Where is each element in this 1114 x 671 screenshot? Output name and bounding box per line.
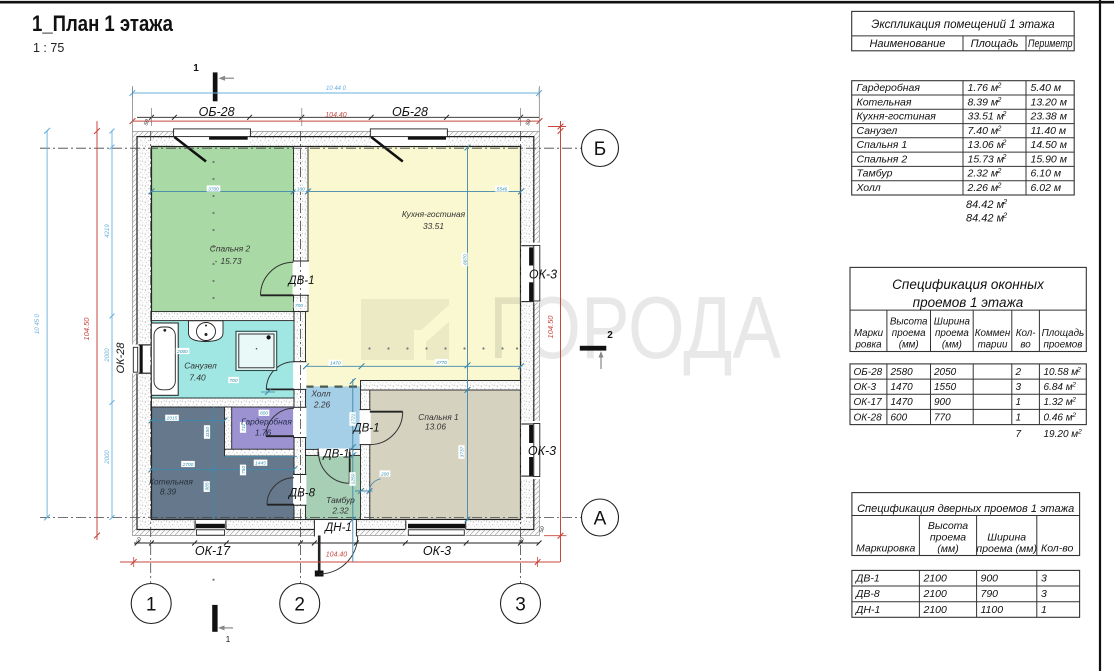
svg-text:900: 900 bbox=[981, 573, 999, 585]
svg-text:ОК-28: ОК-28 bbox=[854, 412, 883, 423]
svg-text:2: 2 bbox=[1002, 111, 1007, 118]
svg-text:Гардеробная: Гардеробная bbox=[241, 417, 292, 427]
svg-text:2: 2 bbox=[997, 183, 1002, 190]
svg-text:2: 2 bbox=[1071, 412, 1076, 419]
svg-text:Площадь: Площадь bbox=[971, 38, 1019, 50]
svg-text:600: 600 bbox=[891, 412, 908, 423]
svg-text:3: 3 bbox=[1041, 573, 1047, 585]
svg-text:13.06 м: 13.06 м bbox=[968, 139, 1004, 151]
svg-text:10 44 0: 10 44 0 bbox=[326, 86, 347, 92]
svg-text:проема (мм): проема (мм) bbox=[976, 543, 1037, 555]
svg-text:Высота: Высота bbox=[928, 520, 968, 532]
svg-text:104.40: 104.40 bbox=[326, 552, 348, 559]
svg-text:985: 985 bbox=[205, 482, 211, 490]
svg-text:Наименование: Наименование bbox=[869, 38, 945, 50]
svg-text:1470: 1470 bbox=[891, 397, 914, 408]
svg-text:проема: проема bbox=[892, 328, 926, 339]
svg-text:790: 790 bbox=[981, 588, 999, 600]
svg-text:1.32 м: 1.32 м bbox=[1044, 397, 1073, 408]
svg-text:Кухня-гостиная: Кухня-гостиная bbox=[402, 209, 466, 219]
svg-text:ДН-1: ДН-1 bbox=[855, 604, 880, 616]
svg-text:А: А bbox=[594, 508, 607, 529]
svg-text:1: 1 bbox=[1016, 412, 1022, 423]
svg-text:Кол-: Кол- bbox=[1016, 328, 1037, 339]
svg-text:13.06: 13.06 bbox=[425, 422, 446, 432]
svg-text:84.42 м: 84.42 м bbox=[966, 213, 1005, 225]
svg-text:ДВ-1: ДВ-1 bbox=[322, 449, 350, 461]
svg-text:Коммен: Коммен bbox=[975, 328, 1011, 339]
svg-text:2.26: 2.26 bbox=[313, 400, 331, 410]
svg-text:6.10 м: 6.10 м bbox=[1031, 168, 1062, 180]
svg-text:ДН-1: ДН-1 bbox=[323, 522, 352, 534]
svg-text:2000: 2000 bbox=[105, 450, 111, 465]
svg-text:8.39 м: 8.39 м bbox=[968, 96, 999, 108]
svg-text:2: 2 bbox=[1002, 154, 1007, 161]
svg-text:6.84 м: 6.84 м bbox=[1044, 382, 1073, 393]
svg-text:4219: 4219 bbox=[105, 224, 111, 238]
svg-text:1150: 1150 bbox=[205, 427, 211, 438]
svg-text:Спальня 1: Спальня 1 bbox=[857, 139, 908, 151]
svg-text:во: во bbox=[1020, 340, 1031, 351]
svg-text:(мм): (мм) bbox=[937, 543, 958, 555]
svg-text:Спальня 1: Спальня 1 bbox=[418, 412, 458, 422]
svg-text:2: 2 bbox=[997, 168, 1002, 175]
svg-text:ДВ-1: ДВ-1 bbox=[287, 275, 315, 287]
svg-text:10.58 м: 10.58 м bbox=[1044, 367, 1079, 378]
svg-text:2: 2 bbox=[607, 330, 613, 341]
svg-text:3: 3 bbox=[515, 594, 526, 615]
svg-text:2000: 2000 bbox=[176, 349, 188, 355]
svg-text:1_План 1 этажа: 1_План 1 этажа bbox=[32, 11, 173, 36]
svg-text:1470: 1470 bbox=[330, 361, 341, 367]
svg-text:2100: 2100 bbox=[923, 604, 948, 616]
svg-text:ОК-17: ОК-17 bbox=[854, 397, 883, 408]
svg-text:2100: 2100 bbox=[923, 573, 948, 585]
svg-text:проема: проема bbox=[935, 328, 969, 339]
svg-text:тарии: тарии bbox=[978, 340, 1008, 351]
svg-text:4770: 4770 bbox=[436, 360, 447, 366]
svg-text:10 45 0: 10 45 0 bbox=[35, 313, 41, 334]
svg-text:2: 2 bbox=[1015, 367, 1022, 378]
svg-text:6870: 6870 bbox=[462, 254, 468, 265]
svg-text:2100: 2100 bbox=[923, 588, 948, 600]
svg-text:1100: 1100 bbox=[981, 604, 1004, 616]
svg-text:5.40 м: 5.40 м bbox=[1031, 82, 1062, 94]
svg-text:ДВ-8: ДВ-8 bbox=[287, 488, 316, 500]
svg-text:104.50: 104.50 bbox=[82, 317, 91, 341]
svg-text:2700: 2700 bbox=[182, 462, 194, 468]
svg-text:ОБ-28: ОБ-28 bbox=[392, 105, 428, 119]
svg-text:1.76 м: 1.76 м bbox=[968, 82, 999, 94]
svg-text:ОБ-28: ОБ-28 bbox=[199, 105, 235, 119]
svg-text:Марки: Марки bbox=[854, 328, 884, 339]
svg-text:33.51: 33.51 bbox=[423, 221, 444, 231]
svg-text:2: 2 bbox=[1002, 211, 1008, 220]
svg-text:ДВ-8: ДВ-8 bbox=[855, 588, 880, 600]
svg-text:1: 1 bbox=[1041, 604, 1047, 616]
svg-text:Кухня-гостиная: Кухня-гостиная bbox=[857, 111, 937, 123]
svg-text:7.40: 7.40 bbox=[189, 373, 206, 383]
svg-text:Спальня 2: Спальня 2 bbox=[857, 153, 908, 165]
svg-text:2: 2 bbox=[997, 125, 1002, 132]
svg-text:2: 2 bbox=[1002, 197, 1008, 206]
svg-text:14.50 м: 14.50 м bbox=[1031, 139, 1067, 151]
svg-text:3: 3 bbox=[1016, 382, 1022, 393]
svg-text:ОК-3: ОК-3 bbox=[854, 382, 877, 393]
svg-text:1: 1 bbox=[1016, 397, 1022, 408]
svg-text:Тамбур: Тамбур bbox=[857, 168, 893, 180]
svg-text:2015: 2015 bbox=[166, 416, 178, 422]
svg-text:2580: 2580 bbox=[890, 367, 914, 378]
svg-text:5546: 5546 bbox=[497, 186, 508, 192]
svg-text:2: 2 bbox=[1071, 397, 1076, 404]
svg-text:104.50: 104.50 bbox=[546, 315, 555, 339]
svg-text:1.76: 1.76 bbox=[255, 428, 272, 438]
svg-text:2000: 2000 bbox=[105, 348, 111, 363]
svg-text:Холл: Холл bbox=[310, 389, 331, 399]
svg-text:Спецификация дверных проемов 1: Спецификация дверных проемов 1 этажа bbox=[857, 503, 1074, 515]
svg-text:2.26 м: 2.26 м bbox=[967, 182, 999, 194]
svg-text:2: 2 bbox=[1002, 140, 1007, 147]
svg-text:2050: 2050 bbox=[933, 367, 957, 378]
svg-text:ОК-3: ОК-3 bbox=[529, 268, 557, 282]
svg-text:Периметр: Периметр bbox=[1028, 38, 1073, 50]
svg-text:3: 3 bbox=[1041, 588, 1047, 600]
svg-text:ОБ-28: ОБ-28 bbox=[854, 367, 883, 378]
svg-text:проема: проема bbox=[930, 532, 966, 544]
svg-text:ОК-17: ОК-17 bbox=[195, 544, 231, 558]
svg-text:Кол-во: Кол-во bbox=[1041, 543, 1073, 555]
svg-text:84.42 м: 84.42 м bbox=[966, 199, 1005, 211]
svg-text:Санузел: Санузел bbox=[184, 361, 217, 371]
svg-text:900: 900 bbox=[934, 397, 951, 408]
svg-text:проемов 1 этажа: проемов 1 этажа bbox=[913, 295, 1024, 310]
svg-text:2.32 м: 2.32 м bbox=[967, 168, 999, 180]
svg-text:6.02 м: 6.02 м bbox=[1031, 182, 1062, 194]
svg-text:15.90 м: 15.90 м bbox=[1031, 153, 1067, 165]
svg-text:1550: 1550 bbox=[934, 382, 957, 393]
svg-text:2.32: 2.32 bbox=[331, 506, 349, 516]
svg-text:8.39: 8.39 bbox=[160, 487, 177, 497]
svg-text:33.51 м: 33.51 м bbox=[968, 111, 1004, 123]
svg-text:11.40 м: 11.40 м bbox=[1031, 125, 1067, 137]
svg-text:2: 2 bbox=[1076, 366, 1081, 373]
svg-text:700: 700 bbox=[295, 303, 303, 309]
svg-text:Ширина: Ширина bbox=[934, 317, 971, 328]
svg-text:Б: Б bbox=[594, 139, 606, 160]
svg-text:1 : 75: 1 : 75 bbox=[33, 41, 64, 55]
svg-text:1: 1 bbox=[226, 635, 231, 644]
svg-text:Спальня 2: Спальня 2 bbox=[210, 244, 251, 254]
svg-text:1470: 1470 bbox=[891, 382, 914, 393]
svg-text:7.40 м: 7.40 м bbox=[968, 125, 999, 137]
svg-text:2: 2 bbox=[1071, 382, 1076, 389]
svg-text:700: 700 bbox=[229, 378, 237, 384]
svg-text:2: 2 bbox=[1077, 429, 1082, 436]
svg-text:Площадь: Площадь bbox=[1042, 328, 1085, 339]
svg-text:Котельная: Котельная bbox=[149, 477, 193, 487]
svg-text:Высота: Высота bbox=[890, 317, 928, 328]
svg-text:Спецификация оконных: Спецификация оконных bbox=[892, 277, 1045, 292]
svg-text:проемов: проемов bbox=[1043, 340, 1082, 351]
svg-text:1445: 1445 bbox=[255, 461, 266, 467]
svg-text:1: 1 bbox=[146, 594, 157, 615]
svg-text:770: 770 bbox=[934, 412, 951, 423]
svg-text:13.20 м: 13.20 м bbox=[1031, 96, 1067, 108]
svg-text:(мм): (мм) bbox=[942, 340, 962, 351]
svg-text:7: 7 bbox=[1016, 429, 1022, 440]
svg-text:(мм): (мм) bbox=[899, 340, 919, 351]
svg-text:15.73: 15.73 bbox=[221, 256, 242, 266]
svg-text:ровка: ровка bbox=[854, 340, 882, 351]
svg-text:Санузел: Санузел bbox=[857, 125, 898, 137]
svg-text:ОК-3: ОК-3 bbox=[528, 444, 556, 458]
svg-text:Гардеробная: Гардеробная bbox=[857, 82, 921, 94]
svg-text:180: 180 bbox=[297, 186, 305, 192]
svg-text:1: 1 bbox=[193, 63, 199, 74]
svg-text:ОК-3: ОК-3 bbox=[423, 544, 451, 558]
svg-text:2: 2 bbox=[997, 83, 1002, 90]
svg-text:Ширина: Ширина bbox=[987, 532, 1026, 544]
svg-text:104.40: 104.40 bbox=[325, 112, 347, 119]
svg-text:1250: 1250 bbox=[350, 473, 356, 484]
svg-text:ДВ-1: ДВ-1 bbox=[855, 573, 880, 585]
svg-text:Котельная: Котельная bbox=[857, 96, 912, 108]
svg-text:15.73 м: 15.73 м bbox=[968, 153, 1004, 165]
svg-text:19.20 м: 19.20 м bbox=[1044, 429, 1079, 440]
svg-text:Холл: Холл bbox=[856, 182, 881, 194]
svg-text:2: 2 bbox=[997, 97, 1002, 104]
svg-text:3700: 3700 bbox=[208, 186, 219, 192]
svg-text:Тамбур: Тамбур bbox=[326, 495, 355, 505]
svg-text:2: 2 bbox=[294, 594, 305, 615]
svg-text:Маркировка: Маркировка bbox=[856, 543, 915, 555]
svg-text:3737: 3737 bbox=[459, 446, 465, 457]
svg-text:200: 200 bbox=[380, 471, 389, 477]
svg-text:23.38 м: 23.38 м bbox=[1030, 111, 1067, 123]
svg-text:ОК-28: ОК-28 bbox=[115, 342, 127, 374]
svg-text:ДВ-1: ДВ-1 bbox=[352, 423, 380, 435]
svg-text:750: 750 bbox=[241, 466, 247, 474]
svg-text:0.46 м: 0.46 м bbox=[1044, 412, 1073, 423]
svg-text:Экспликация помещений 1 этажа: Экспликация помещений 1 этажа bbox=[871, 19, 1054, 31]
